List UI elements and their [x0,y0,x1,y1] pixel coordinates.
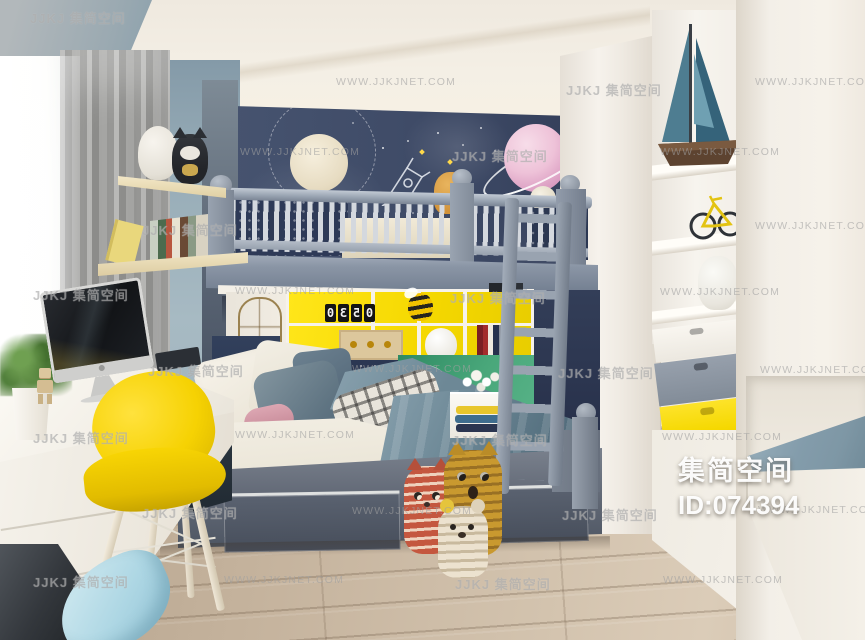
black-cat-chest [182,164,198,176]
clock-digit: 3 [338,304,349,322]
clock-digit: 5 [351,304,362,322]
cat-ear [407,458,423,470]
imac-chin-logo [98,365,105,372]
site-name-text: 集简空间 [678,458,799,485]
cat-ear [448,441,466,455]
footboard-post [572,417,598,509]
box-dot-3 [384,341,391,348]
drawer-handle-hole [700,407,715,416]
bear-ear [471,499,485,513]
shelf-books-row [150,214,208,262]
imac-screen-reflection [43,280,150,370]
cat-eye [432,492,440,500]
moon [290,134,348,192]
towel-navy [456,424,501,432]
star-yellow-1 [419,149,425,155]
clock-digit: 0 [364,304,375,322]
bedroom-render: 0530 [0,0,865,640]
drawer-handle-hole [689,328,704,336]
plush-bee [408,293,433,321]
cat-eye [480,472,489,481]
clock-digit: 0 [325,304,336,322]
imac-screen [39,277,154,384]
black-cat-face [180,146,200,160]
cat-eye [457,472,466,481]
robot-leg [47,394,52,404]
cat-eye [414,492,422,500]
towel-yellow [456,406,502,414]
sailboat-model [656,24,742,174]
cat-ear [480,441,498,455]
black-cat-ear [193,127,207,138]
bear-eye [468,524,474,530]
robot-body [37,380,53,393]
bear-nose [458,532,466,538]
cubby-divider-3 [463,292,467,362]
white-figurine [698,256,738,310]
robot-leg [38,394,43,404]
plush-black-cat [172,134,208,184]
item-id-text: ID:074394 [678,492,799,518]
box-dot-1 [350,341,357,348]
flip-clock: 0530 [325,304,375,322]
bedpost-mid [450,183,474,267]
cat-nose [424,502,430,507]
towel-blue [455,415,502,423]
robot-head [39,368,51,378]
wardrobe-shelf-unit [652,10,748,344]
box-dot-2 [367,341,374,348]
bear-ear [440,499,454,513]
bear-eye [450,524,456,530]
drawer-handle-hole [693,362,708,371]
star-yellow-2 [447,159,453,165]
plush-bear-cream [438,506,488,578]
cat-mouth [468,486,478,499]
site-id-label: 集简空间 ID:074394 [678,458,799,518]
black-cat-ear [173,127,187,138]
